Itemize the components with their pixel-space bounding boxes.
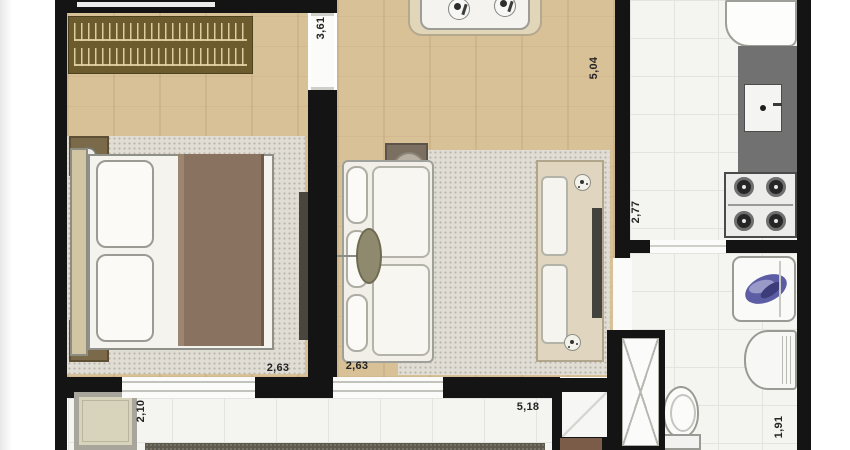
wardrobe: [68, 16, 253, 74]
gas-stove: [724, 172, 797, 238]
toilet-cistern: [661, 434, 701, 450]
fridge: [725, 0, 797, 47]
bed-headboard: [70, 148, 88, 356]
sideboard-cushion: [541, 264, 568, 344]
kitchen-service-opening: [650, 240, 726, 253]
stove-burner-icon: [734, 211, 754, 231]
wall-kitchen-service-b: [726, 240, 797, 253]
shaft-window: [562, 392, 607, 437]
balcony-bench: [74, 392, 137, 450]
floor-plan: 3,61 5,04 2,77 2,63 2,63 2,10 5,18 1,91: [0, 0, 850, 450]
double-bed: [88, 154, 274, 350]
service-opening: [613, 258, 632, 332]
sideboard-cushion: [541, 176, 568, 256]
laundry-tank: [732, 256, 796, 322]
stove-burner-icon: [734, 177, 754, 197]
pillow: [96, 160, 154, 248]
stove-grate-line: [728, 204, 793, 206]
bedroom-top-window: [77, 2, 215, 7]
dimension-label-balcony-width: 5,18: [510, 400, 546, 414]
dimension-label-balcony-depth: 2,10: [134, 393, 148, 429]
wall-living-kitchen: [615, 0, 630, 258]
service-door: [622, 338, 659, 446]
dimension-label-bedroom-depth: 3,61: [314, 10, 328, 46]
sofa-back-cushion: [346, 294, 368, 352]
dimension-label-service-width: 1,91: [772, 409, 786, 445]
pillow: [96, 254, 154, 342]
floor-lamp: [356, 228, 382, 284]
sofa-back-cushion: [346, 166, 368, 224]
dimension-label-living-depth: 5,04: [587, 50, 601, 86]
wall-bedroom-living: [308, 90, 337, 398]
bed-blanket: [178, 154, 264, 346]
wardrobe-hanger-row-icon: [74, 48, 247, 66]
wall-balcony-3: [443, 377, 560, 398]
dimension-label-living-width: 2,63: [339, 359, 375, 373]
sofa-seat-cushion: [372, 264, 430, 356]
stove-burner-icon: [766, 211, 786, 231]
towel-icon: [741, 268, 792, 310]
wall-kitchen-service-a: [615, 240, 650, 253]
kitchen-sink: [744, 84, 782, 132]
dimension-label-bedroom-width: 2,63: [260, 361, 296, 375]
toilet: [663, 386, 699, 438]
wall-right-exterior: [797, 0, 811, 450]
tv-panel-bedroom: [299, 192, 308, 340]
washing-machine: [744, 330, 797, 390]
wardrobe-hanger-row-icon: [74, 23, 247, 41]
tv-panel-living: [592, 208, 602, 318]
plant-icon: [574, 174, 591, 191]
stove-burner-icon: [766, 177, 786, 197]
balcony-hedge: [145, 443, 545, 450]
plant-icon: [564, 334, 581, 351]
wall-balcony-2: [255, 377, 333, 398]
living-balcony-door: [333, 377, 443, 398]
doormat: [560, 438, 602, 450]
dimension-label-kitchen-depth: 2,77: [629, 194, 643, 230]
image-left-edge: [0, 0, 12, 450]
